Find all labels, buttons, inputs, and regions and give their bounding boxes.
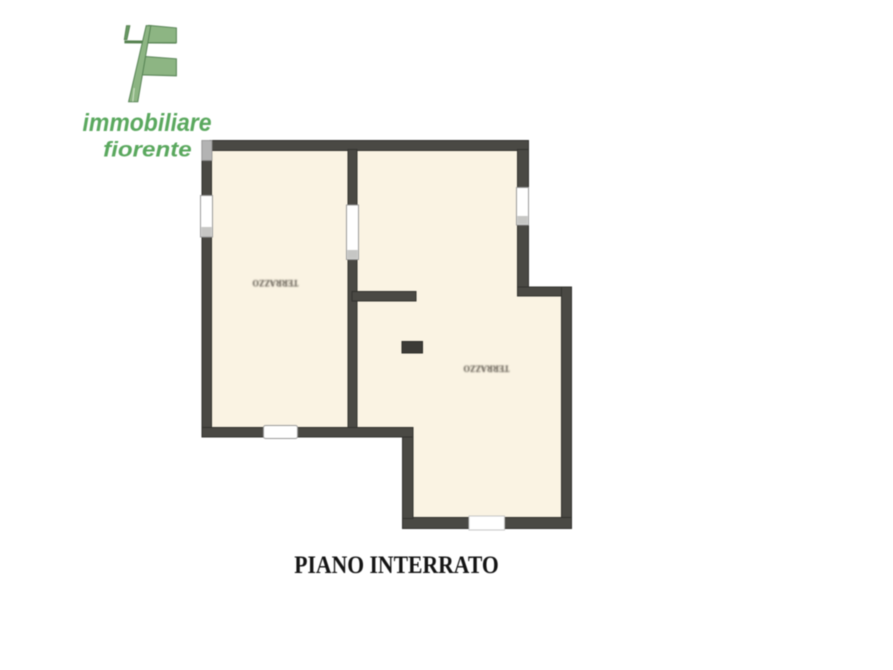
svg-text:TERRAZZO: TERRAZZO	[464, 363, 510, 373]
svg-text:fiorente: fiorente	[103, 138, 192, 162]
svg-text:TERRAZZO: TERRAZZO	[253, 277, 299, 287]
svg-text:immobiliare: immobiliare	[83, 109, 212, 137]
svg-text:PIANO INTERRATO: PIANO INTERRATO	[294, 552, 499, 579]
